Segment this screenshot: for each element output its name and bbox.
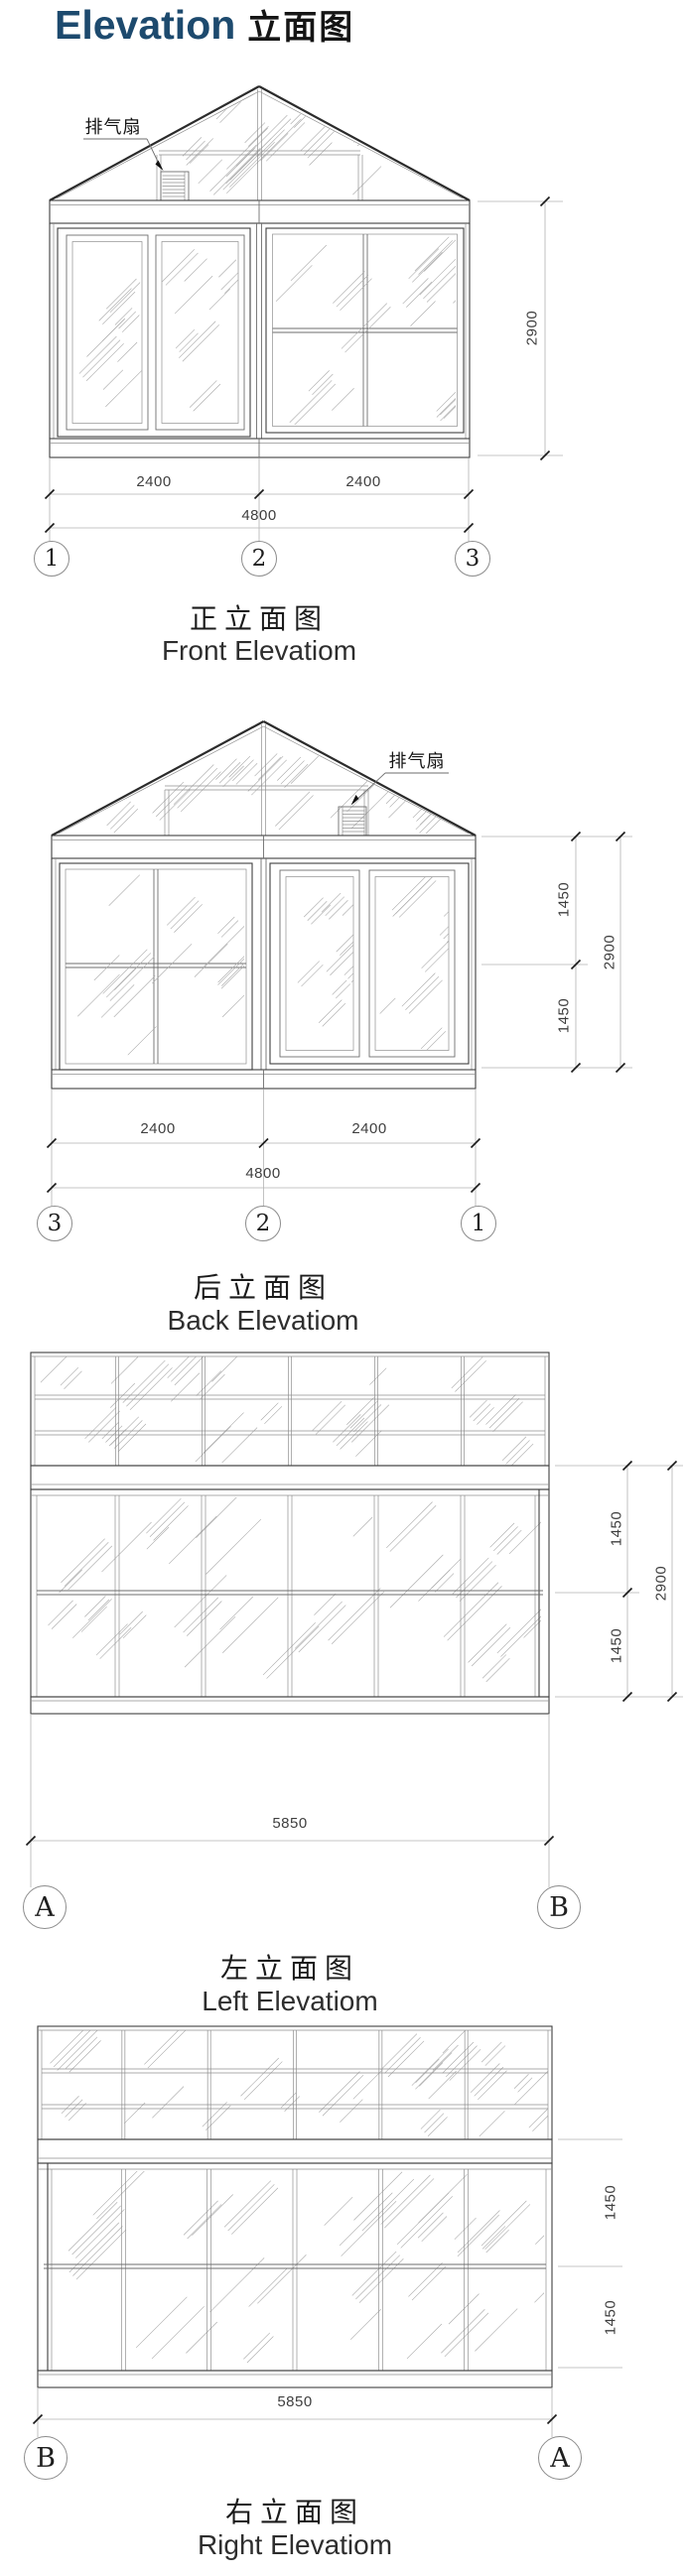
- dim-width: 2400: [322, 473, 405, 490]
- axis-bubble: 3: [37, 1206, 72, 1241]
- axis-bubble: A: [23, 1885, 67, 1929]
- dim-width: 2400: [112, 473, 196, 490]
- dim-overall-width: 5850: [248, 1815, 332, 1832]
- dim-height: 1450: [556, 974, 573, 1058]
- dim-overall-height: 2900: [524, 287, 541, 370]
- axis-bubble: 1: [461, 1206, 496, 1241]
- axis-bubble: 2: [241, 541, 277, 577]
- axis-bubble: 2: [245, 1206, 281, 1241]
- elevation-sheet: Elevation立面图 2400240048002900排气扇正立面图Fron…: [0, 0, 687, 2576]
- dim-height: 1450: [603, 2276, 619, 2360]
- dim-width: 2400: [328, 1120, 411, 1137]
- dim-height: 1450: [556, 858, 573, 942]
- caption-right-en: Right Elevatiom: [116, 2529, 474, 2561]
- axis-bubble: 1: [34, 541, 69, 577]
- axis-bubble: A: [538, 2436, 582, 2480]
- dim-overall-height: 2900: [602, 911, 618, 994]
- caption-left-zh: 左立面图: [111, 1947, 469, 1987]
- dim-width: 2400: [116, 1120, 200, 1137]
- dim-overall-width: 4800: [217, 507, 301, 524]
- axis-bubble: B: [537, 1885, 581, 1929]
- axis-bubble: B: [24, 2436, 68, 2480]
- dim-height: 1450: [609, 1487, 625, 1571]
- caption-left-en: Left Elevatiom: [111, 1986, 469, 2017]
- axis-bubble: 3: [455, 541, 490, 577]
- caption-back-zh: 后立面图: [84, 1266, 442, 1306]
- caption-right-zh: 右立面图: [116, 2491, 474, 2530]
- caption-front-en: Front Elevatiom: [80, 635, 438, 667]
- dim-overall-height: 2900: [653, 1542, 670, 1625]
- caption-front-zh: 正立面图: [80, 597, 438, 637]
- dim-overall-width: 4800: [221, 1165, 305, 1182]
- dim-height: 1450: [603, 2161, 619, 2245]
- caption-back-en: Back Elevatiom: [84, 1305, 442, 1337]
- exhaust-fan-label: 排气扇: [71, 113, 155, 139]
- dim-overall-width: 5850: [253, 2393, 337, 2410]
- exhaust-fan-label: 排气扇: [375, 747, 459, 773]
- dim-height: 1450: [609, 1605, 625, 1688]
